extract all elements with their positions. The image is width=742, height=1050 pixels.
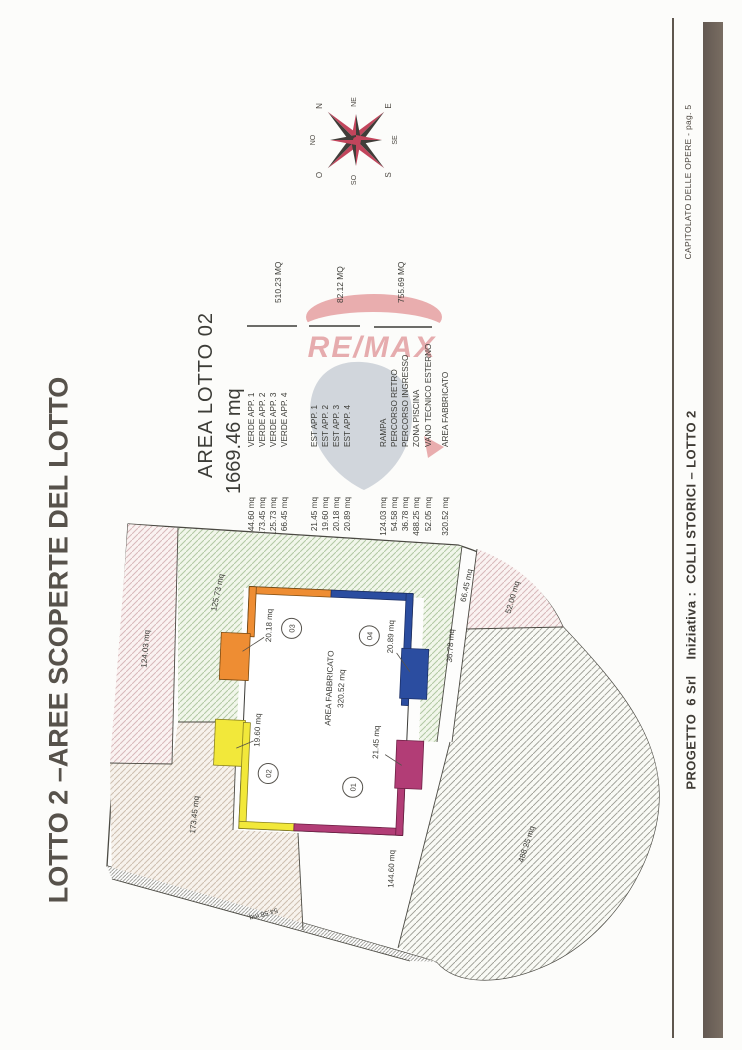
- compass-label-n: N: [315, 103, 324, 109]
- legend-value: 173.45 mq: [258, 497, 267, 536]
- legend-label: PERCORSO RETRO: [390, 369, 399, 447]
- site-plan-drawing: RE/MAX N NE E SE S SO O NO AREA LOTTO 02…: [0, 0, 742, 1050]
- compass-label-s: S: [384, 172, 393, 177]
- compass-center: [353, 137, 359, 143]
- legend-value: 21.45 mq: [310, 497, 319, 532]
- unit-number-02: 02: [264, 769, 273, 778]
- legend-value: 66.45 mq: [280, 497, 289, 532]
- compass-label-no: NO: [310, 134, 317, 145]
- terrace-area-02: 19.60 mq: [252, 713, 262, 747]
- legend-value: 20.18 mq: [332, 497, 341, 532]
- unit-number-03: 03: [287, 624, 296, 633]
- remax-wordmark: RE/MAX: [308, 331, 437, 364]
- compass-label-so: SO: [351, 174, 358, 185]
- legend-label: PERCORSO INGRESSO: [401, 355, 410, 447]
- terrace-area-04: 20.89 mq: [386, 620, 396, 654]
- legend-title: AREA LOTTO 02: [195, 312, 217, 478]
- unit-number-01: 01: [349, 783, 358, 792]
- legend-value: 52.05 mq: [424, 497, 433, 532]
- legend-value: 320.52 mq: [441, 497, 450, 536]
- legend-label: RAMPA: [379, 418, 388, 447]
- legend-label: VERDE APP. 1: [247, 392, 256, 447]
- legend-group1-total: 510.23 MQ: [273, 261, 283, 303]
- legend-label: AREA FABBRICATO: [441, 372, 450, 447]
- legend-value: 19.60 mq: [321, 497, 330, 532]
- compass-label-se: SE: [392, 135, 399, 145]
- legend-label: VERDE APP. 4: [280, 392, 289, 447]
- compass-label-e: E: [384, 103, 393, 108]
- legend-total-area: 1669.46 mq: [223, 388, 245, 494]
- legend-value: 54.58 mq: [390, 497, 399, 532]
- terrace-area-03: 20.18 mq: [264, 609, 274, 643]
- building-area: 320.52 mq: [336, 669, 347, 708]
- compass-label-ne: NE: [351, 97, 358, 107]
- legend-label: EST APP. 2: [321, 405, 330, 447]
- legend-group2-total: 82.12 MQ: [335, 266, 345, 303]
- legend-label: EST APP. 4: [343, 405, 352, 447]
- legend-label: ZONA PISCINA: [412, 389, 421, 447]
- legend-value: 124.03 mq: [379, 497, 388, 536]
- legend-label: EST APP. 1: [310, 405, 319, 447]
- terrace-area-01: 21.45 mq: [371, 725, 381, 759]
- unit-number-04: 04: [365, 631, 374, 640]
- legend-label: VERDE APP. 3: [269, 392, 278, 447]
- compass-label-o: O: [315, 172, 324, 178]
- lot-plan: 03 04 02 01 20.18 mq 20.89 mq 19.60 mq 2…: [107, 524, 659, 980]
- legend-value: 36.78 mq: [401, 497, 410, 532]
- legend-label: EST APP. 3: [332, 405, 341, 447]
- legend-label: VANO TECNICO ESTERNO: [424, 344, 433, 447]
- legend-value: 20.89 mq: [343, 497, 352, 532]
- legend-value: 488.25 mq: [412, 497, 421, 536]
- legend-label: VERDE APP. 2: [258, 392, 267, 447]
- legend-group3-total: 755.69 MQ: [396, 261, 406, 303]
- compass-rose: N NE E SE S SO O NO: [310, 97, 399, 185]
- legend-value: 144.60 mq: [247, 497, 256, 536]
- label-verde-app-1: 144.60 mq: [386, 850, 396, 888]
- legend-value: 125.73 mq: [269, 497, 278, 536]
